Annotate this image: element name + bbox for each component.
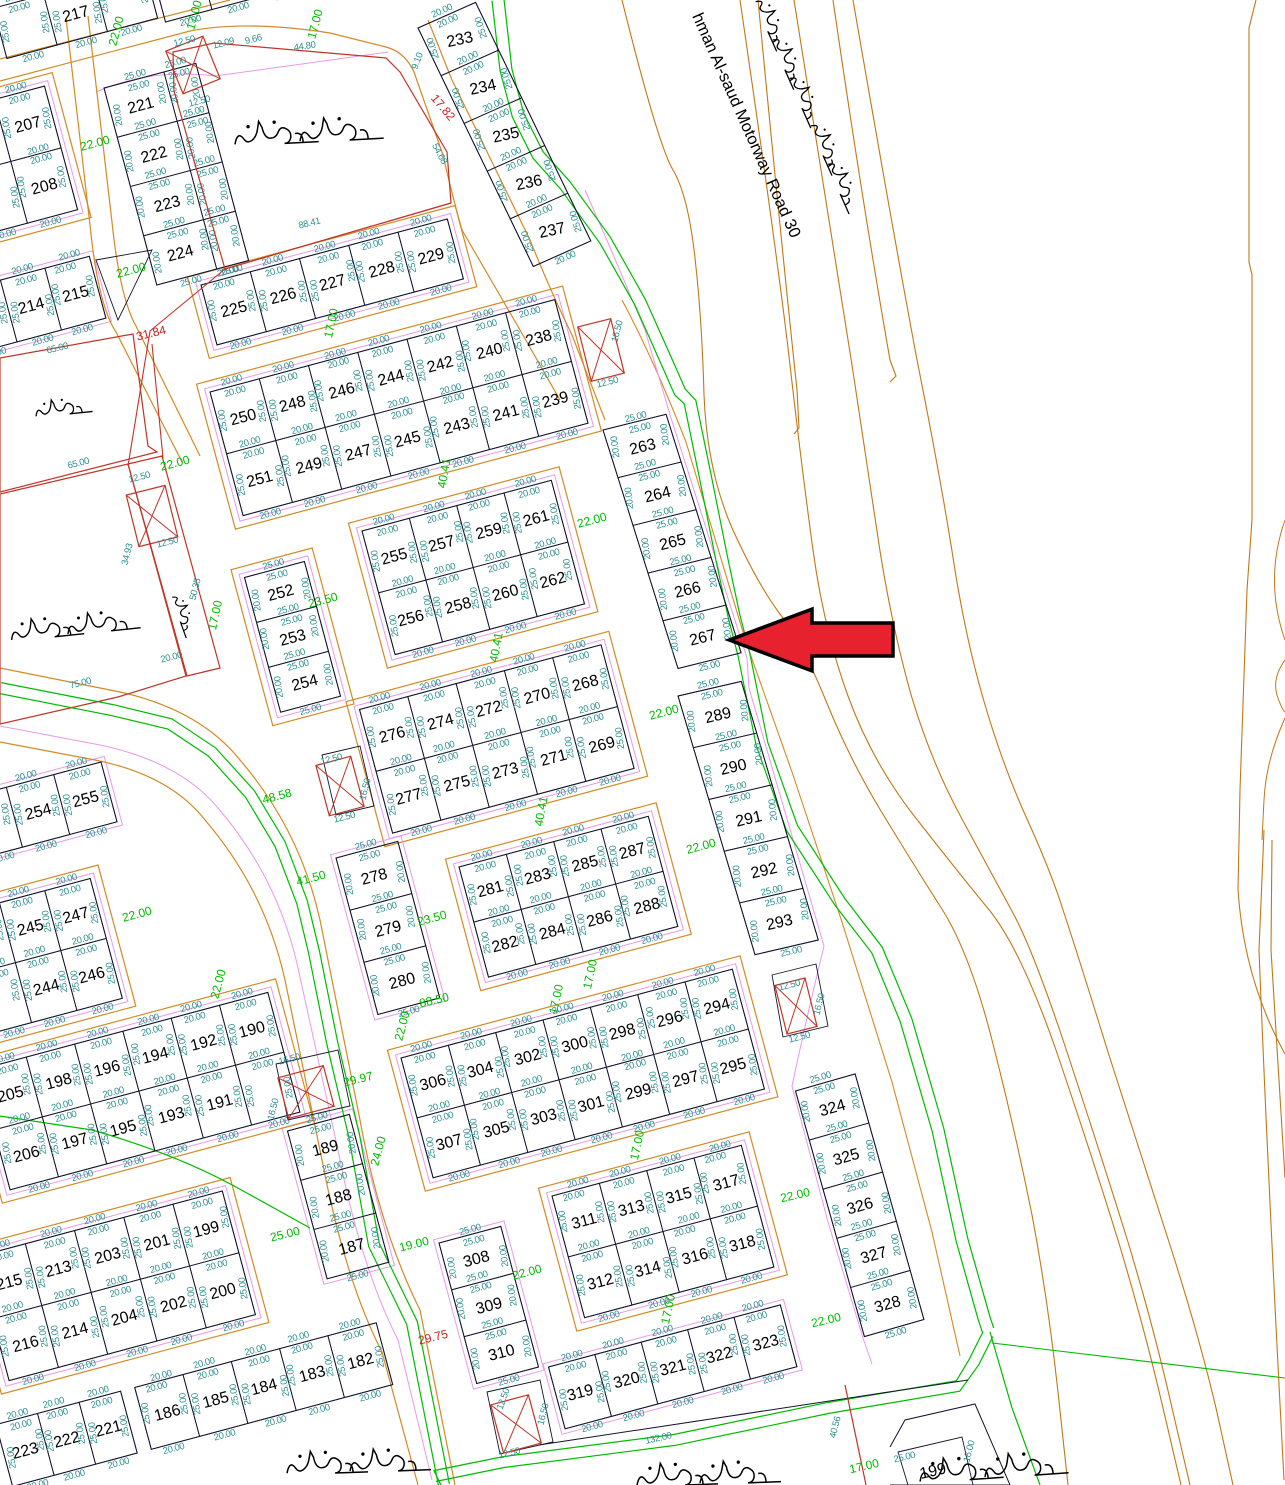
svg-text:25.00: 25.00 (137, 0, 151, 4)
svg-text:20.00: 20.00 (798, 898, 811, 921)
svg-text:20.00: 20.00 (738, 699, 751, 722)
svg-text:20.00: 20.00 (767, 799, 780, 822)
svg-text:20.00: 20.00 (748, 920, 761, 943)
svg-text:20.00: 20.00 (714, 810, 727, 833)
svg-text:20.00: 20.00 (685, 710, 698, 733)
svg-text:20.00: 20.00 (702, 765, 715, 788)
svg-text:20.00: 20.00 (752, 743, 765, 766)
svg-text:20.00: 20.00 (731, 865, 744, 888)
svg-text:25.00: 25.00 (97, 0, 111, 14)
svg-text:20.00: 20.00 (784, 854, 797, 877)
